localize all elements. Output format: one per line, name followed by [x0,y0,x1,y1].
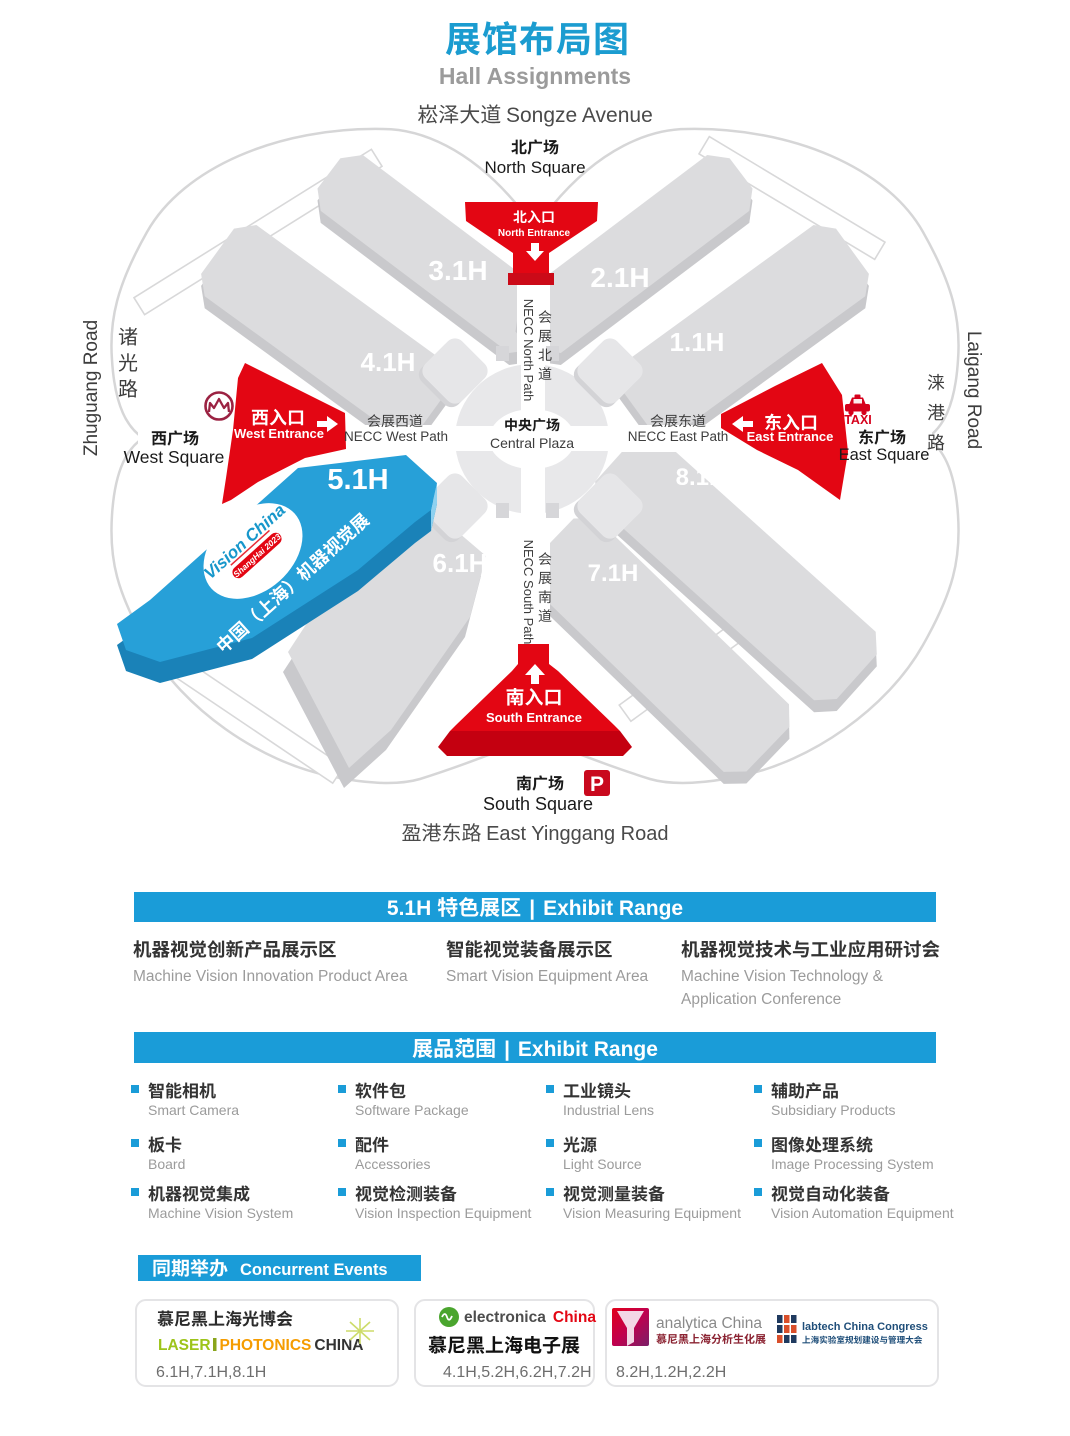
svg-text:East Entrance: East Entrance [747,429,834,444]
svg-text:Machine Vision Technology &: Machine Vision Technology & [681,968,884,985]
svg-text:Exhibit Range: Exhibit Range [543,897,683,920]
svg-text:analytica China: analytica China [656,1315,762,1332]
svg-text:Machine Vision Innovation Prod: Machine Vision Innovation Product Area [133,968,408,985]
svg-text:Light Source: Light Source [563,1156,642,1172]
svg-text:electronica: electronica [464,1309,546,1326]
svg-text:Vision Measuring Equipment: Vision Measuring Equipment [563,1205,741,1221]
svg-text:NECC North Path: NECC North Path [521,299,536,402]
svg-text:West Entrance: West Entrance [234,426,324,441]
svg-text:8.1H: 8.1H [676,464,727,491]
svg-text:East Yinggang Road: East Yinggang Road [486,823,668,845]
svg-text:5.1H: 5.1H [387,897,431,920]
svg-text:8.2H,1.2H,2.2H: 8.2H,1.2H,2.2H [616,1364,726,1381]
svg-text:PHOTONICS: PHOTONICS [220,1337,312,1354]
svg-text:Machine Vision System: Machine Vision System [148,1205,293,1221]
svg-text:Smart Vision Equipment Area: Smart Vision Equipment Area [446,968,649,985]
svg-text:6.1H: 6.1H [433,548,488,578]
svg-text:labtech China Congress: labtech China Congress [802,1321,928,1333]
svg-text:CHINA: CHINA [314,1337,363,1354]
svg-text:NECC East Path: NECC East Path [628,429,729,444]
svg-text:North Entrance: North Entrance [498,228,571,239]
svg-text:Image Processing System: Image Processing System [771,1156,934,1172]
svg-text:7.1H: 7.1H [588,560,639,587]
svg-text:South Square: South Square [483,794,593,814]
svg-text:South Entrance: South Entrance [486,710,582,725]
svg-text:NECC West Path: NECC West Path [344,429,448,444]
svg-text:NECC South Path: NECC South Path [521,540,536,645]
svg-text:North Square: North Square [484,158,585,177]
svg-text:Accessories: Accessories [355,1156,430,1172]
svg-text:Hall Assignments: Hall Assignments [439,63,631,89]
svg-text:Vision Inspection Equipment: Vision Inspection Equipment [355,1205,532,1221]
svg-text:Zhuguang Road: Zhuguang Road [81,320,102,456]
svg-text:Laigang Road: Laigang Road [963,331,984,449]
svg-text:P: P [590,773,604,796]
svg-text:3.1H: 3.1H [428,255,487,286]
svg-text:4.1H,5.2H,6.2H,7.2H: 4.1H,5.2H,6.2H,7.2H [443,1364,592,1381]
svg-text:China: China [553,1309,596,1326]
svg-text:Concurrent Events: Concurrent Events [240,1261,388,1279]
svg-text:Vision Automation Equipment: Vision Automation Equipment [771,1205,954,1221]
svg-text:|: | [504,1038,510,1061]
svg-text:Songze Avenue: Songze Avenue [506,104,653,127]
svg-text:4.1H: 4.1H [361,347,416,377]
svg-text:Exhibit Range: Exhibit Range [518,1038,658,1061]
svg-text:LASER: LASER [158,1337,211,1354]
svg-text:TAXI: TAXI [844,413,872,427]
svg-text:1.1H: 1.1H [670,327,725,357]
svg-text:|: | [529,897,535,920]
svg-text:West Square: West Square [124,447,225,467]
svg-text:6.1H,7.1H,8.1H: 6.1H,7.1H,8.1H [156,1364,266,1381]
svg-text:2.1H: 2.1H [590,262,649,293]
svg-text:Board: Board [148,1156,185,1172]
svg-text:Application Conference: Application Conference [681,991,841,1008]
svg-text:Smart Camera: Smart Camera [148,1102,239,1118]
svg-text:Industrial Lens: Industrial Lens [563,1102,654,1118]
svg-text:East Square: East Square [839,446,930,464]
svg-text:Subsidiary Products: Subsidiary Products [771,1102,896,1118]
svg-text:5.1H: 5.1H [327,464,388,496]
svg-text:Central Plaza: Central Plaza [490,435,574,451]
svg-text:Software Package: Software Package [355,1102,469,1118]
